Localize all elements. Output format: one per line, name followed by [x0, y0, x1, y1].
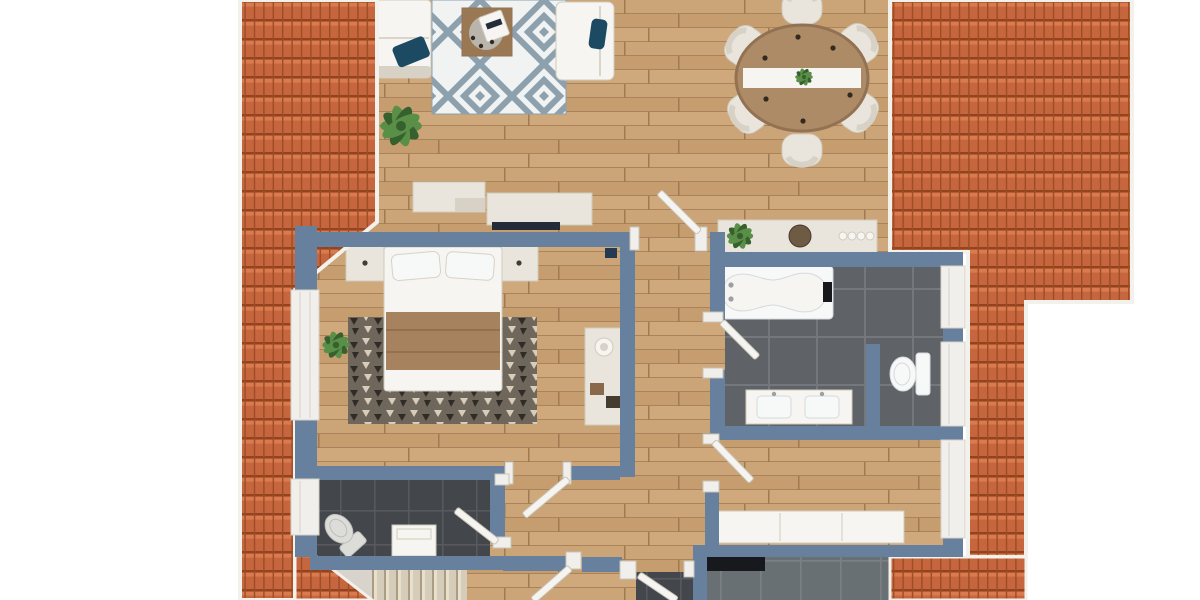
wall-bathroom-west-a	[710, 232, 725, 322]
wall-dressing-south	[693, 545, 963, 557]
wall-dressing-west	[705, 492, 719, 545]
wall-bedroom-south-a	[295, 466, 505, 480]
console-step	[455, 198, 485, 212]
wall-hall-south-a	[503, 556, 569, 571]
place-dot	[795, 34, 800, 39]
place-dot	[847, 92, 852, 97]
sideboard-console	[718, 220, 877, 253]
armchair	[556, 2, 614, 80]
sink-faucet	[772, 392, 776, 396]
door-frame	[684, 561, 694, 577]
door-frame	[703, 368, 723, 378]
place-dot	[800, 118, 805, 123]
bed-pillow	[391, 251, 441, 281]
decor-dot	[471, 36, 475, 40]
floor-plan-render	[0, 0, 1200, 600]
decor-dot	[490, 40, 494, 44]
tub-faucet	[728, 282, 733, 287]
nightstand-knob	[362, 260, 367, 265]
tub-headrest	[823, 282, 832, 302]
staircase	[372, 570, 467, 600]
window-bedroom	[291, 290, 319, 420]
door-frame	[703, 481, 719, 492]
wall-hall-south-b	[582, 557, 622, 572]
door-frame	[630, 227, 639, 250]
wall-bedroom-south-b	[571, 466, 620, 480]
armchair-base	[556, 2, 614, 80]
toilet-tank	[916, 353, 930, 395]
decor-plate-inner	[600, 343, 608, 351]
window-bathroom-1	[941, 266, 965, 328]
place-dot	[763, 96, 768, 101]
wall-device	[605, 248, 617, 258]
door-frame	[495, 474, 509, 485]
window-dressing	[941, 440, 965, 538]
sink-right	[805, 396, 839, 418]
place-dot	[830, 45, 835, 50]
dining-chair-s	[782, 134, 822, 166]
decor-bowl	[789, 225, 811, 247]
nightstand-knob	[516, 260, 521, 265]
decor-ring	[839, 232, 847, 240]
corner-sofa	[376, 0, 431, 78]
wall-bedroom-east	[620, 240, 635, 477]
kitchen-counter	[698, 555, 765, 571]
wall-wc-east	[490, 480, 505, 537]
console-right	[487, 193, 592, 225]
coffee-table	[462, 8, 512, 56]
wall-bathroom-south	[710, 426, 945, 440]
wall-bathroom-north	[710, 252, 963, 267]
wall-kitchen-west	[693, 557, 707, 600]
dining-chair-n	[782, 0, 822, 24]
window-wc	[291, 479, 319, 535]
decor-dot	[479, 44, 483, 48]
wardrobe	[718, 511, 904, 543]
sink-left	[757, 396, 791, 418]
floor-plan-svg	[0, 0, 1200, 600]
sink-faucet	[820, 392, 824, 396]
window-bathroom-2	[941, 342, 965, 426]
decor-ring	[866, 232, 874, 240]
bed-pillow	[445, 251, 495, 280]
sofa-armrest	[376, 66, 431, 78]
wall-wc-south	[310, 556, 503, 570]
decor-box	[606, 396, 620, 408]
bed-runner	[386, 312, 500, 370]
door-frame	[620, 561, 636, 579]
tv	[492, 222, 560, 230]
roof-right-lower	[890, 557, 1026, 600]
wall-bedroom-north	[295, 232, 638, 247]
place-dot	[762, 55, 767, 60]
door-frame	[703, 312, 723, 322]
dressing-room-furniture	[718, 511, 904, 543]
wall-bath-partition	[866, 344, 880, 440]
decor-ring	[857, 232, 865, 240]
washbasin-cabinet	[392, 525, 436, 556]
decor-ring	[848, 232, 856, 240]
tub-faucet	[728, 296, 733, 301]
decor-box	[590, 383, 604, 395]
